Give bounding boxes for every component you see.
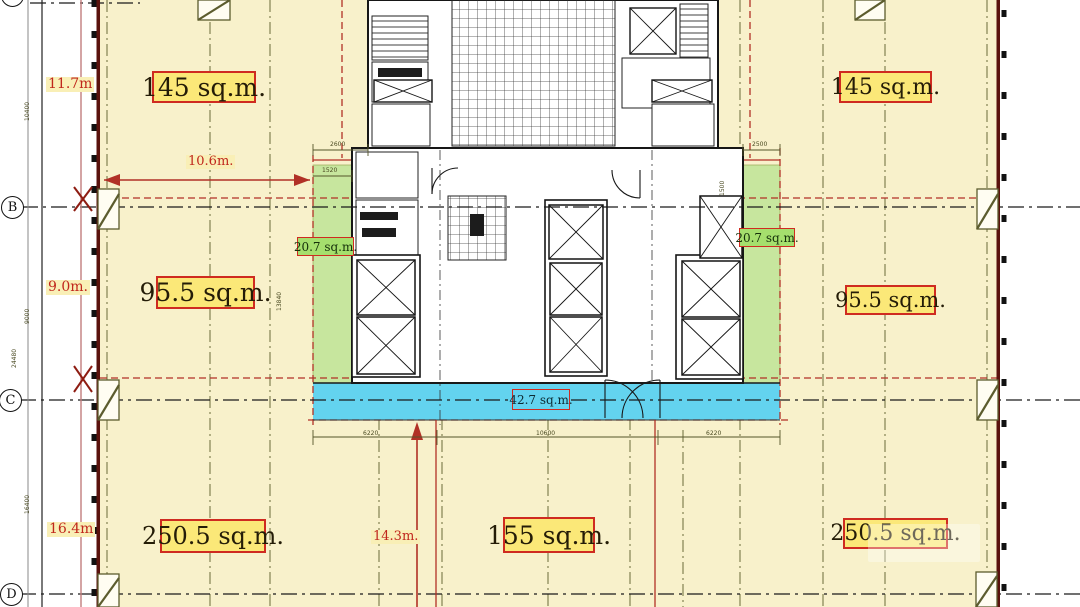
area-label-service-left: 20.7 sq.m. [297, 237, 354, 256]
dim-tiny-1520: 1520 [322, 168, 337, 174]
area-label-mid-left: 95.5 sq.m. [156, 276, 255, 309]
area-label-upper-left: 145 sq.m. [152, 71, 256, 103]
watermark [868, 524, 980, 562]
area-label-service-right: 20.7 sq.m. [739, 228, 795, 247]
dim-width-mid: 9.0m. [46, 280, 90, 295]
dim-tiny-24480: 24480 [12, 349, 18, 368]
grid-letter-c: C [6, 393, 16, 408]
dim-tiny-10400: 10400 [25, 102, 31, 121]
area-label-upper-right: 145 sq.m. [839, 71, 932, 103]
core-block [313, 0, 780, 425]
grid-letter-b: B [8, 200, 18, 215]
grid-bubble-d: D [0, 583, 23, 606]
area-label-lower-center: 155 sq.m. [503, 517, 595, 553]
grid-bubble-b: B [1, 196, 24, 219]
dim-width-lower: 16.4m [47, 522, 95, 537]
dim-tiny-16400: 16400 [25, 495, 31, 514]
grid-bubble-c: C [0, 389, 22, 412]
area-label-entry-strip: 42.7 sq.m. [512, 389, 570, 410]
dim-tiny-13840: 13840 [277, 292, 283, 311]
dim-tiny-2600: 2600 [330, 142, 345, 148]
grid-letter-a: A [8, 0, 17, 3]
dim-width-upper: 11.7m [46, 77, 94, 92]
dim-top-span: 10.6m. [186, 155, 235, 169]
dim-bottom-span: 14.3m. [371, 530, 420, 544]
area-label-mid-right: 95.5 sq.m. [845, 285, 936, 315]
dim-tiny-10600: 10600 [536, 431, 555, 437]
dim-tiny-9000: 9000 [25, 309, 31, 324]
area-label-lower-left: 250.5 sq.m. [160, 519, 266, 553]
floor-plan-canvas: A B C D 145 sq.m. 145 sq.m. 95.5 sq.m. 9… [0, 0, 1080, 607]
dim-tiny-6220-left: 6220 [363, 431, 378, 437]
dim-tiny-1500: 1500 [720, 181, 726, 196]
dim-tiny-2500: 2500 [752, 142, 767, 148]
grid-letter-d: D [6, 587, 16, 602]
dim-tiny-6220-right: 6220 [706, 431, 721, 437]
